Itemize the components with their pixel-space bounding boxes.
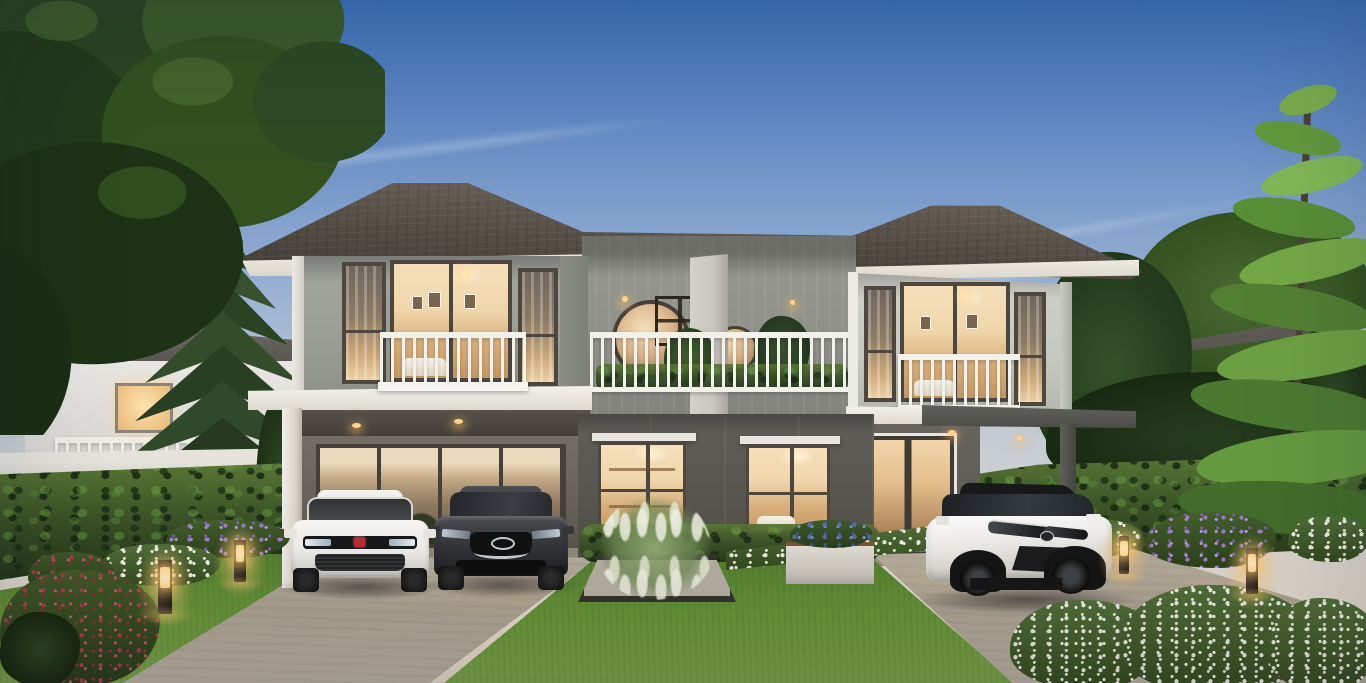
hatchback-mirror	[284, 529, 297, 538]
suv-mirror	[936, 516, 949, 525]
garden-lamp-4	[1243, 548, 1261, 596]
blue-flowers	[790, 520, 872, 548]
window-header-1	[592, 433, 696, 441]
dark-grey-sedan-car	[434, 486, 568, 592]
hatchback-headlight-right	[389, 539, 415, 546]
broadleaf-tree-canopy	[0, 0, 385, 435]
terrace-ceiling-light	[622, 296, 628, 302]
terrace-ceiling-light	[790, 300, 795, 305]
hatchback-wheel	[293, 568, 319, 592]
flower-planter-box	[786, 542, 874, 584]
balcony-ledge-left	[378, 382, 528, 391]
lamp-ground-glow	[215, 576, 265, 591]
suv-badge	[1040, 531, 1054, 542]
balcony-railing-right	[898, 354, 1020, 410]
garden-lamp-3	[1116, 536, 1132, 576]
upper-right-window-narrow-1	[864, 286, 896, 402]
conifer-tree-right	[1150, 30, 1366, 542]
white-hatchback-car	[291, 490, 429, 594]
terrace-railing	[590, 332, 854, 392]
sedan-grille	[470, 532, 532, 558]
sedan-lower-intake	[456, 560, 546, 574]
corner-trim-right-unit-b	[1060, 282, 1072, 414]
carport-downlight-right	[948, 430, 956, 435]
hatchback-headlight-left	[305, 539, 331, 546]
white-flowers-right	[1288, 516, 1366, 562]
hatchback-wheel	[401, 568, 427, 592]
hatchback-red-badge	[354, 537, 365, 547]
corner-trim-right-unit-a	[848, 272, 858, 414]
garden-lamp-2	[231, 540, 249, 584]
sedan-wheel	[538, 566, 564, 590]
hatchback-lower-intake	[315, 554, 405, 571]
lamp-ground-glow	[134, 606, 196, 625]
garden-lamp-1	[154, 560, 176, 616]
lamp-light	[1120, 541, 1128, 556]
sedan-badge	[491, 537, 515, 550]
sedan-mirror	[562, 526, 574, 534]
white-compact-suv	[926, 484, 1112, 608]
lamp-light	[236, 545, 245, 562]
lamp-ground-glow	[1227, 587, 1277, 603]
carport-downlight-right	[1016, 436, 1023, 440]
ornamental-grass-plume	[598, 496, 712, 600]
corner-bush-left	[0, 612, 80, 683]
scene-stage	[0, 0, 1366, 683]
suv-rocker-cladding	[970, 578, 1062, 590]
pillar-shade-left-unit	[560, 256, 588, 406]
hatchback-mirror	[423, 529, 436, 538]
lamp-light	[1248, 554, 1257, 572]
window-header-2	[740, 436, 840, 444]
lamp-light	[160, 567, 171, 588]
